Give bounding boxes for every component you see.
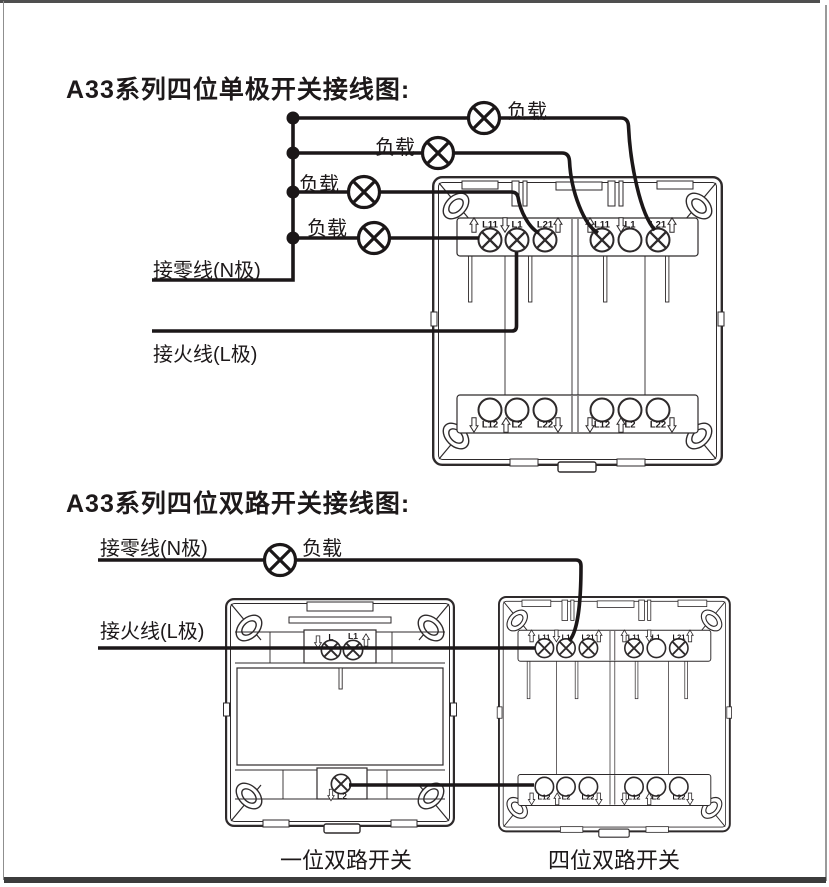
terminal-label: L2	[511, 420, 522, 431]
terminal-label: L1	[624, 220, 635, 231]
diagram1-title: A33系列四位单极开关接线图:	[66, 70, 410, 106]
lamp-icon	[423, 138, 454, 169]
terminal-label: L11	[538, 633, 551, 642]
terminal-label: L11	[594, 220, 610, 231]
terminal-label: L21	[673, 633, 686, 642]
load-label: 负载	[507, 95, 547, 124]
terminal-label: L2	[652, 793, 661, 802]
junction-dot	[287, 147, 300, 160]
switch-caption-4gang: 四位双路开关	[548, 843, 680, 875]
neutral-wire-label: 接零线(N极)	[100, 532, 208, 561]
live-wire-label: 接火线(L极)	[153, 338, 257, 367]
terminal-label: L21	[537, 220, 553, 231]
terminal-label: L12	[482, 420, 498, 431]
terminal-label: L	[328, 632, 333, 642]
lamp-icon	[469, 103, 500, 134]
terminal-label: L21	[582, 633, 595, 642]
terminal-label: L22	[537, 420, 553, 431]
lamp-icon	[265, 545, 296, 576]
terminal-label: L11	[482, 220, 498, 231]
junction-dot	[287, 112, 300, 125]
switch-body-4gang-bottom	[497, 597, 731, 837]
load-label: 负载	[299, 168, 339, 197]
load-label: 负载	[302, 532, 342, 561]
switch-caption-1gang: 一位双路开关	[280, 843, 412, 875]
terminal-label: L11	[628, 633, 641, 642]
terminal-label: L2	[337, 791, 347, 801]
diagram2-title: A33系列四位双路开关接线图:	[66, 484, 410, 520]
lamp-icon	[349, 177, 380, 208]
load-label: 负载	[375, 131, 415, 160]
junction-dot	[287, 232, 300, 245]
terminal-label: L2	[624, 420, 635, 431]
terminal-label: L1	[562, 633, 571, 642]
terminal-label: L1	[348, 631, 358, 641]
manual-page: A33系列四位单极开关接线图: 负载 负载 负载 负载 接零线(N极) 接火线(…	[0, 0, 829, 887]
terminal-label: L2	[562, 793, 571, 802]
terminal-label: L12	[628, 793, 641, 802]
terminal-label: L1	[511, 220, 522, 231]
terminal-label: L22	[650, 420, 666, 431]
junction-dot	[287, 186, 300, 199]
neutral-wire-label: 接零线(N极)	[153, 254, 261, 283]
terminal-label: L12	[594, 420, 610, 431]
terminal-label: L22	[582, 793, 595, 802]
terminal-label: L21	[650, 220, 666, 231]
terminal-label: L12	[538, 793, 551, 802]
terminal-label: L22	[673, 793, 686, 802]
switch-body-4gang-top	[431, 177, 724, 472]
live-wire-label: 接火线(L极)	[100, 615, 204, 644]
lamp-icon	[359, 223, 390, 254]
terminal-label: L1	[652, 633, 661, 642]
load-label: 负载	[307, 212, 347, 241]
